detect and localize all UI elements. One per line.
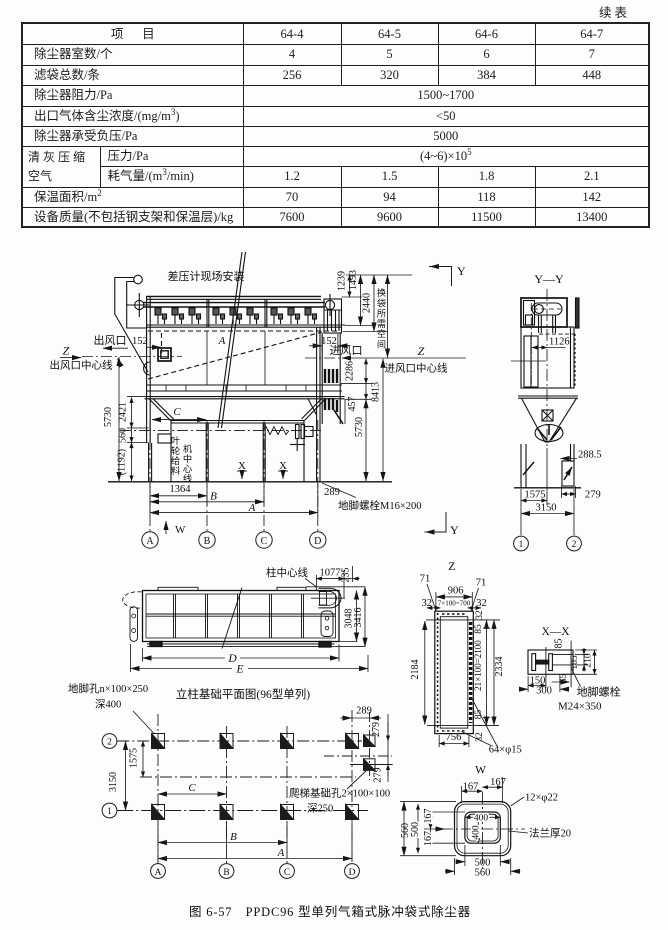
svg-text:地脚螺栓: 地脚螺栓 [577,685,621,699]
svg-text:间: 间 [377,339,386,350]
svg-text:5730: 5730 [354,417,365,437]
svg-text:Z: Z [418,344,425,358]
svg-text:Z: Z [448,559,455,573]
svg-text:3150: 3150 [108,772,119,792]
svg-text:12×φ22: 12×φ22 [525,793,558,804]
svg-text:A: A [146,536,154,547]
svg-text:400: 400 [474,814,489,824]
svg-text:Y—Y: Y—Y [534,272,564,286]
svg-text:300: 300 [536,686,552,697]
svg-text:167: 167 [490,777,506,788]
svg-text:出风口中心线: 出风口中心线 [50,359,113,372]
svg-text:32: 32 [475,610,485,620]
svg-text:210: 210 [584,653,594,668]
svg-text:756: 756 [446,732,462,743]
svg-text:2286: 2286 [345,361,356,381]
svg-text:给: 给 [171,455,180,467]
svg-text:7×100=700: 7×100=700 [438,600,471,608]
svg-text:心: 心 [183,464,192,475]
svg-text:A: A [277,847,285,859]
svg-text:A: A [218,335,226,347]
svg-text:1239: 1239 [337,271,348,291]
svg-text:2421: 2421 [118,402,129,422]
svg-text:288.5: 288.5 [578,450,602,461]
svg-text:深400: 深400 [95,699,121,711]
svg-text:2: 2 [107,738,112,748]
svg-text:2184: 2184 [410,660,421,680]
svg-text:400: 400 [472,825,482,840]
svg-text:279: 279 [585,490,601,501]
svg-text:料: 料 [171,465,180,477]
svg-text:立柱基础平面图(96型单列): 立柱基础平面图(96型单列) [176,687,310,701]
svg-text:Y: Y [450,523,459,537]
svg-text:279: 279 [373,768,384,783]
svg-text:D: D [314,536,321,547]
svg-text:W: W [475,765,486,777]
svg-text:85: 85 [554,639,565,649]
svg-text:8413: 8413 [371,382,382,402]
svg-text:深250: 深250 [307,803,333,815]
svg-text:1077: 1077 [320,568,341,579]
svg-text:1126: 1126 [549,337,570,348]
svg-text:C: C [188,782,196,794]
svg-text:Y: Y [457,264,466,278]
svg-text:1493: 1493 [348,270,359,290]
svg-text:2334: 2334 [494,657,505,677]
svg-text:167: 167 [423,831,434,846]
svg-text:B: B [223,868,229,878]
svg-text:C: C [284,868,290,878]
svg-text:105: 105 [570,655,580,670]
svg-text:Z: Z [63,344,70,358]
svg-text:C: C [173,406,181,418]
svg-text:B: B [210,491,217,503]
svg-text:需: 需 [377,319,386,329]
svg-text:换: 换 [377,287,386,298]
svg-text:3416: 3416 [353,608,364,628]
svg-text:235: 235 [340,568,351,583]
svg-text:X: X [279,460,287,472]
svg-text:出风口: 出风口 [94,333,127,347]
svg-text:机: 机 [183,443,193,455]
svg-text:32: 32 [422,598,433,609]
svg-text:叶: 叶 [171,436,180,447]
svg-text:71: 71 [420,574,431,585]
svg-text:进风口: 进风口 [330,344,363,357]
svg-text:中: 中 [183,453,192,465]
svg-text:167: 167 [463,782,479,793]
svg-text:袋: 袋 [377,297,386,308]
svg-text:289: 289 [324,487,340,498]
svg-text:A: A [155,868,162,878]
svg-text:法兰厚20: 法兰厚20 [529,827,571,840]
svg-text:1575: 1575 [129,748,140,768]
svg-text:64×φ15: 64×φ15 [489,745,522,756]
svg-text:B: B [230,831,237,843]
svg-text:轮: 轮 [171,445,180,457]
svg-text:地脚螺栓M16×200: 地脚螺栓M16×200 [338,499,422,512]
svg-text:X: X [238,460,246,472]
svg-text:B: B [204,536,211,547]
svg-text:289: 289 [356,706,372,717]
svg-text:1575: 1575 [525,490,546,501]
svg-text:21×100=2100: 21×100=2100 [473,640,483,691]
svg-text:32: 32 [476,598,487,609]
svg-text:差压计现场安装: 差压计现场安装 [168,269,245,283]
svg-text:3150: 3150 [536,503,557,514]
svg-text:M24×350: M24×350 [558,701,602,713]
svg-text:2440: 2440 [362,293,373,313]
svg-text:457: 457 [347,397,358,412]
svg-text:进风口中心线: 进风口中心线 [385,362,448,375]
svg-text:空: 空 [377,328,386,339]
svg-text:279: 279 [371,722,382,737]
svg-text:32: 32 [475,732,485,742]
svg-text:1364: 1364 [170,484,192,495]
svg-text:X—X: X—X [541,626,570,638]
svg-text:500: 500 [410,822,421,837]
svg-text:W: W [175,524,186,536]
svg-text:85: 85 [474,624,484,634]
svg-text:85: 85 [474,710,484,720]
svg-text:E: E [235,663,243,675]
svg-text:所: 所 [377,309,386,319]
svg-text:167: 167 [423,809,434,824]
svg-text:图 6-57 PPDC96 型单列气箱式脉冲袋式除尘器: 图 6-57 PPDC96 型单列气箱式脉冲袋式除尘器 [189,904,471,919]
svg-text:71: 71 [476,578,487,589]
svg-text:爬梯基础孔2×100×100: 爬梯基础孔2×100×100 [289,787,390,800]
svg-text:A: A [248,502,256,514]
svg-text:560: 560 [475,868,491,879]
svg-text:D: D [349,868,356,878]
svg-text:C: C [261,536,268,547]
svg-text:2: 2 [572,540,577,550]
svg-text:地脚孔n×100×250: 地脚孔n×100×250 [68,682,148,695]
svg-text:5730: 5730 [103,407,114,427]
svg-text:560: 560 [118,428,129,443]
svg-text:65: 65 [559,674,569,684]
svg-text:906: 906 [448,586,464,597]
svg-text:(1192): (1192) [117,449,128,475]
svg-text:柱中心线: 柱中心线 [266,566,308,579]
svg-text:1: 1 [519,540,524,550]
svg-text:1: 1 [107,807,112,817]
svg-text:152: 152 [132,336,148,347]
